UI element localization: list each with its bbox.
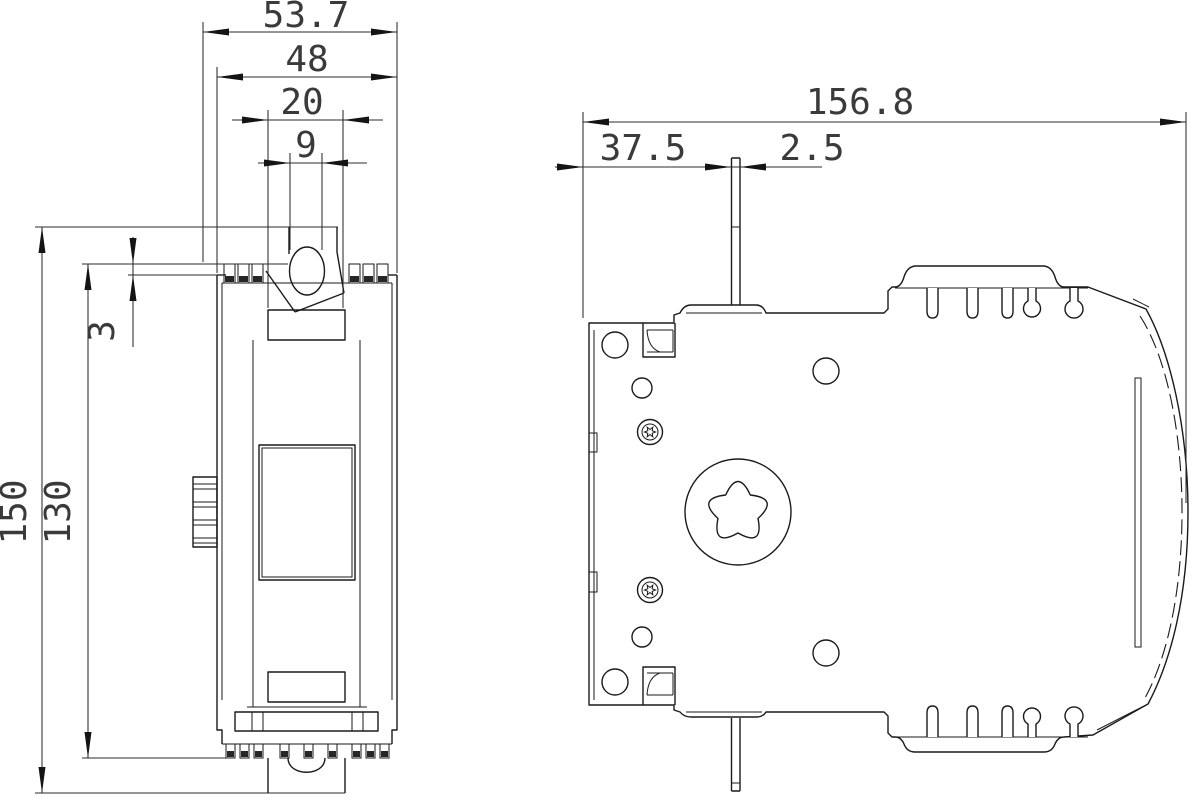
funnel-slot <box>967 706 978 737</box>
mount-pin-top <box>732 158 741 305</box>
side-top-notch <box>643 323 675 357</box>
front-top-terminals <box>224 264 388 283</box>
tooth-band <box>350 276 359 282</box>
arrowhead <box>740 164 766 171</box>
spline-socket <box>685 459 791 565</box>
dim-text: 9 <box>295 125 317 166</box>
front-bottom-label-window <box>268 672 345 702</box>
funnel-slot <box>927 288 938 318</box>
screw-upper <box>638 420 663 445</box>
arrowhead <box>39 227 46 253</box>
hole-top-left <box>602 332 628 358</box>
technical-drawing: 53.7 48 20 9 <box>0 0 1200 800</box>
front-din-clip <box>193 477 217 547</box>
clip-body <box>193 477 217 547</box>
screw-lower <box>638 578 663 603</box>
tooth-band <box>239 276 248 282</box>
front-bottom-terminals <box>226 744 389 758</box>
front-view <box>193 227 397 793</box>
side-bottom-funnels <box>895 706 1088 737</box>
arrowhead <box>1160 119 1186 126</box>
tooth-band <box>378 276 387 282</box>
cover-inner-curve <box>1140 316 1182 698</box>
tooth-band <box>227 751 234 757</box>
tooth-band <box>364 276 373 282</box>
tooth-band <box>241 751 248 757</box>
funnel-slot <box>927 706 938 737</box>
cover-seam-rect <box>1135 378 1141 647</box>
torx-star <box>645 585 656 595</box>
drawing-canvas: 53.7 48 20 9 <box>0 0 1200 800</box>
funnel-slot <box>1002 706 1013 737</box>
toggle-hole <box>290 247 325 295</box>
arrowhead <box>371 74 397 81</box>
tooth-band <box>281 751 288 757</box>
funnel-keyhole <box>1024 288 1041 317</box>
arrowhead <box>557 164 583 171</box>
side-outline <box>589 266 1188 752</box>
arrowhead <box>583 119 609 126</box>
tooth-band <box>225 276 234 282</box>
notch-cam <box>647 330 660 352</box>
hole-lower-right <box>813 640 839 666</box>
arrowhead <box>371 29 397 36</box>
front-top-label-window <box>268 310 345 340</box>
arrowhead <box>130 275 137 301</box>
dim-text: 2.5 <box>779 128 844 169</box>
front-toggle-lever <box>266 227 344 312</box>
pin-top-outline <box>732 158 741 305</box>
side-bottom-notch <box>643 667 675 705</box>
notch-cam <box>647 673 660 695</box>
front-center-window-outer <box>259 445 355 580</box>
funnel-keyhole <box>1024 708 1041 737</box>
cover-bottom-seam <box>1097 706 1144 730</box>
arrowhead <box>39 767 46 793</box>
notch-inner <box>647 673 673 695</box>
tooth-band <box>255 751 262 757</box>
cover-top-seam <box>1133 299 1149 307</box>
arrowhead <box>322 160 348 167</box>
dim-text: 53.7 <box>263 0 350 36</box>
dimension-annotations: 53.7 48 20 9 <box>0 0 1186 793</box>
arrowhead <box>705 164 731 171</box>
dim-side-pin-width: 2.5 <box>740 128 845 171</box>
funnel-keyhole <box>1065 288 1083 318</box>
dim-text: 37.5 <box>600 128 687 169</box>
dim-text: 156.8 <box>806 82 914 123</box>
funnel-keyhole <box>1065 707 1083 737</box>
front-bottom-rail <box>235 707 378 731</box>
arrowhead <box>85 264 92 290</box>
front-center-window-inner <box>262 448 352 577</box>
tooth-band <box>381 751 388 757</box>
tab-arc <box>288 758 325 772</box>
hole-small-lower <box>632 627 652 647</box>
arrowhead <box>217 74 243 81</box>
front-left-side <box>217 275 222 744</box>
front-bottom-tab <box>268 758 345 793</box>
socket-outer-circle <box>685 459 791 565</box>
side-view <box>589 158 1188 791</box>
side-left-bump-upper <box>589 433 597 452</box>
lever-arm-right <box>295 293 344 312</box>
tooth-band <box>253 276 262 282</box>
hole-small-upper <box>632 378 652 398</box>
dim-text: 130 <box>38 479 79 544</box>
rail-slot <box>235 712 378 731</box>
socket-star <box>709 482 768 538</box>
side-top-funnels <box>895 288 1088 318</box>
arrowhead <box>264 160 290 167</box>
dim-text: 150 <box>0 479 35 544</box>
arrowhead <box>85 732 92 758</box>
arrowhead <box>343 117 369 124</box>
funnel-slot <box>967 288 978 318</box>
notch-inner <box>647 330 673 352</box>
dim-text: 3 <box>82 320 123 342</box>
dim-text: 20 <box>280 82 323 123</box>
hole-upper-right <box>813 358 839 384</box>
dim-text: 48 <box>285 39 328 80</box>
screw-outer <box>638 578 663 603</box>
side-left-bump-lower <box>589 572 597 592</box>
tooth-band <box>367 751 374 757</box>
dim-front-body-height: 130 <box>38 264 288 758</box>
torx-star <box>645 427 656 437</box>
arrowhead <box>130 238 137 264</box>
hole-bottom-left <box>602 669 628 695</box>
front-right-side <box>392 275 397 744</box>
arrowhead <box>242 117 268 124</box>
tooth-band <box>305 751 312 757</box>
screw-outer <box>638 420 663 445</box>
tooth-band <box>329 751 336 757</box>
mount-pin-bottom <box>732 718 741 791</box>
pin-bottom-outline <box>732 718 741 791</box>
dim-front-toggle-hole-width: 9 <box>258 125 367 250</box>
tooth-band <box>353 751 360 757</box>
arrowhead <box>203 29 229 36</box>
funnel-slot <box>1002 288 1013 318</box>
